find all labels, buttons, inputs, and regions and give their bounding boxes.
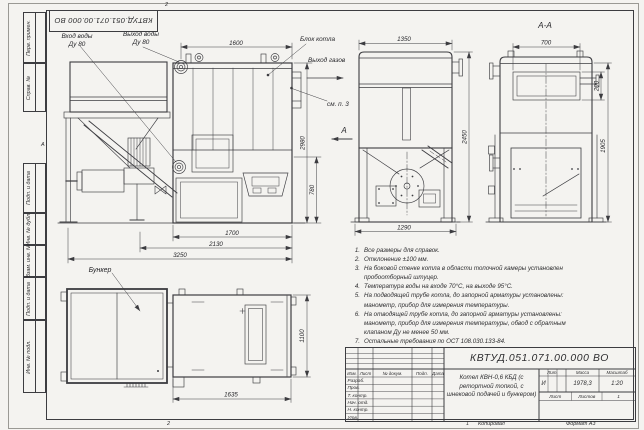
note-item-5: 5.На подводящей трубе котла, до запорной… — [351, 291, 619, 309]
frame-field-podp-data-2: Подп. и дата — [23, 277, 46, 320]
frame-field-sprav-no: Справ. № — [23, 63, 46, 112]
sheets-value: 1 — [602, 392, 635, 401]
product-name: Котел КВН-0,6 КБД (с ретортной топкой, с… — [445, 370, 538, 404]
water-inlet-label: Вход воды — [61, 32, 92, 40]
frame-field-inv-dubl: Инв. № дубл. — [23, 213, 46, 245]
sheets-label: Листов — [572, 392, 603, 401]
lit-label: Лит. — [539, 369, 566, 376]
col-doc: № докум. — [373, 369, 412, 377]
bunker-label: Бункер — [89, 267, 112, 274]
mass-value: 1978,3 — [566, 376, 599, 392]
dim-1600: 1600 — [229, 40, 243, 47]
dim-700: 700 — [541, 40, 552, 47]
dim-2980: 2980 — [300, 136, 307, 151]
lit-value: И — [539, 376, 548, 392]
water-inlet-du-label: Ду 80 — [68, 41, 86, 48]
note-item-1: 1.Все размеры для справок. — [351, 246, 619, 255]
gas-outlet-label: Выход газов — [308, 56, 346, 64]
row-razrab: Разраб. — [346, 377, 373, 384]
section-view — [486, 44, 612, 223]
view-arrow-letter: А — [340, 126, 346, 135]
zone-letter: А — [41, 142, 45, 148]
doc-number: КВТУД.051.071.00.000 ВО — [444, 348, 635, 369]
row-nachotd: Нач. отд. — [346, 399, 373, 406]
frame-field-vzam-inv: Взам. инв. № — [23, 245, 46, 277]
boiler-block-label: Блок котла — [300, 36, 335, 43]
footer-copy-label: Копировал — [478, 421, 505, 427]
dim-1100: 1100 — [299, 329, 306, 343]
dim-1290: 1290 — [397, 225, 411, 232]
zone-mark-top: 2 — [165, 2, 168, 8]
col-list: Лист — [358, 369, 373, 377]
front-view — [58, 43, 352, 263]
dim-2130: 2130 — [208, 241, 223, 248]
zone-mark-bottom: 2 — [167, 421, 170, 427]
note-item-2: 2.Отклонение ±100 мм. — [351, 255, 619, 264]
col-izm: Изм. — [346, 369, 358, 377]
note-item-6: 6.На отводящей трубе котла, до запорной … — [351, 310, 619, 337]
frame-field-podp-data-1: Подп. и дата — [23, 163, 46, 213]
plan-view — [61, 273, 311, 403]
row-tkontr: Т. контр. — [346, 392, 373, 399]
scale-value: 1:20 — [599, 376, 635, 392]
dim-1350: 1350 — [397, 36, 411, 43]
frame-field-perv-primen: Перв. примен. — [23, 12, 46, 63]
scale-label: Масштаб — [599, 369, 635, 376]
col-date: Дата — [432, 369, 444, 377]
note-item-3: 3.На боковой стенке котла в области топо… — [351, 264, 619, 282]
see-note-label: см. п. 3 — [327, 101, 349, 108]
frame-field-inv-podl: Инв. № подл. — [23, 320, 46, 393]
dim-1905: 1905 — [600, 139, 607, 153]
col-sign: Подп. — [412, 369, 432, 377]
zone-mark-sheet: 1 — [466, 421, 469, 427]
water-outlet-du-label: Ду 80 — [132, 39, 150, 46]
title-block: КВТУД.051.071.00.000 ВО Котел КВН-0,6 КБ… — [345, 347, 636, 422]
top-stamp: КВТУД.051.071.00.000 ВО — [49, 10, 158, 32]
dim-200: 200 — [594, 80, 601, 92]
sheet-label: Лист — [539, 392, 572, 401]
dim-780: 780 — [309, 184, 316, 195]
mass-label: Масса — [566, 369, 599, 376]
top-stamp-number: КВТУД.051.071.00.000 ВО — [54, 17, 152, 26]
side-view — [351, 40, 473, 236]
note-item-7: 7.Остальные требования по ОСТ 108.030.13… — [351, 337, 619, 346]
dim-2450: 2450 — [462, 130, 469, 145]
row-utv: Утв. — [346, 414, 373, 422]
dim-1635: 1635 — [224, 392, 238, 399]
note-item-4: 4.Температура воды на входе 70°С, на вых… — [351, 282, 619, 291]
dim-1700: 1700 — [225, 230, 239, 237]
footer-format-label: Формат А3 — [566, 421, 596, 427]
drawing-sheet: Вход воды Ду 80 Выход воды Ду 80 Блок ко… — [0, 0, 644, 430]
dim-3250: 3250 — [173, 252, 187, 259]
notes-list: 1.Все размеры для справок. 2.Отклонение … — [351, 246, 619, 346]
row-prov: Пров. — [346, 384, 373, 391]
section-title: А-А — [537, 21, 552, 30]
row-nkontr: Н. контр. — [346, 406, 373, 413]
